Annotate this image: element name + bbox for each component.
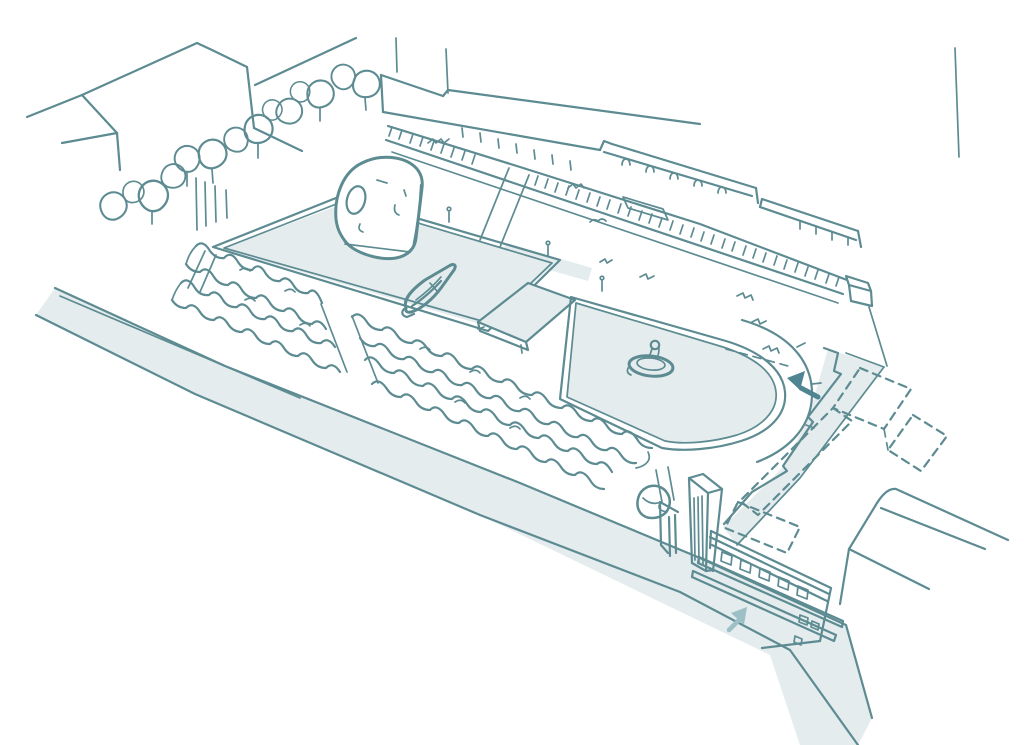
site-sketch-illustration [0, 0, 1024, 745]
crossing-path-upper [480, 168, 529, 247]
balustrade-pedestal [846, 276, 872, 306]
city-block-building [27, 38, 356, 170]
path-to-tower [656, 467, 674, 502]
dome-pavilion [336, 157, 423, 258]
bridge-road [840, 489, 1008, 604]
oval-pond [560, 259, 821, 462]
illustration-canvas [0, 0, 1024, 745]
arcade-buildings [381, 75, 861, 247]
crossing-path-hedges [321, 304, 378, 383]
tower-stripes [694, 496, 703, 564]
tree-trunk-scribbles [196, 178, 227, 230]
